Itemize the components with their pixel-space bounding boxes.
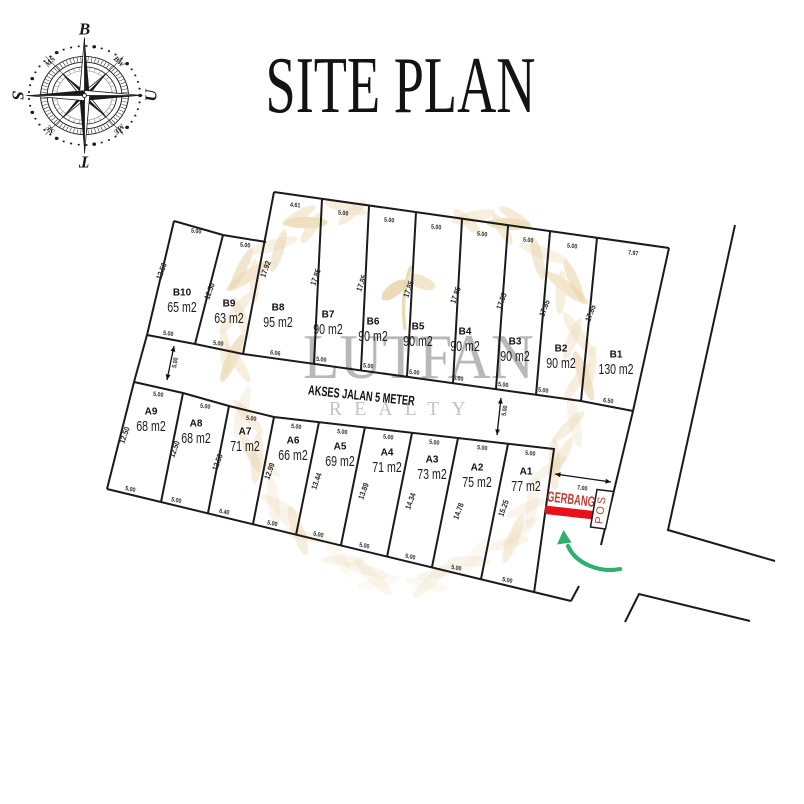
- svg-text:68 m2: 68 m2: [136, 418, 166, 435]
- svg-text:SITE PLAN: SITE PLAN: [266, 40, 536, 130]
- svg-text:5.00: 5.00: [200, 403, 212, 411]
- svg-text:69 m2: 69 m2: [325, 453, 355, 470]
- svg-text:66 m2: 66 m2: [278, 447, 308, 464]
- svg-text:5.00: 5.00: [337, 428, 349, 436]
- svg-text:S: S: [9, 91, 28, 100]
- svg-text:B9: B9: [223, 299, 236, 310]
- svg-text:7.00: 7.00: [577, 484, 589, 492]
- svg-text:5.00: 5.00: [291, 423, 303, 431]
- svg-text:A6: A6: [287, 436, 300, 447]
- svg-text:5.00: 5.00: [538, 387, 550, 395]
- svg-text:A2: A2: [471, 463, 484, 474]
- svg-text:B6: B6: [367, 317, 380, 328]
- svg-text:B2: B2: [555, 344, 568, 355]
- svg-text:68 m2: 68 m2: [181, 430, 211, 447]
- svg-text:5.00: 5.00: [383, 433, 395, 441]
- svg-text:130 m2: 130 m2: [599, 361, 634, 378]
- svg-text:B7: B7: [322, 310, 335, 321]
- svg-text:4.61: 4.61: [290, 202, 301, 210]
- svg-text:5.00: 5.00: [153, 391, 165, 399]
- svg-text:5.00: 5.00: [384, 217, 395, 225]
- svg-text:B10: B10: [173, 288, 192, 299]
- svg-text:63 m2: 63 m2: [214, 310, 244, 327]
- svg-text:5.00: 5.00: [338, 210, 349, 218]
- svg-text:5.00: 5.00: [213, 340, 225, 348]
- svg-text:5.00: 5.00: [163, 330, 175, 338]
- svg-text:A1: A1: [520, 467, 533, 478]
- svg-text:A8: A8: [190, 419, 203, 430]
- svg-text:5.00: 5.00: [429, 439, 441, 447]
- svg-text:T: T: [79, 153, 90, 172]
- svg-text:5.00: 5.00: [431, 224, 442, 232]
- svg-text:5.00: 5.00: [477, 231, 488, 239]
- svg-text:B8: B8: [272, 303, 285, 314]
- svg-text:90 m2: 90 m2: [546, 355, 576, 372]
- svg-text:7.97: 7.97: [628, 250, 639, 258]
- svg-text:5.00: 5.00: [567, 243, 578, 251]
- svg-text:90 m2: 90 m2: [358, 328, 388, 345]
- svg-text:A7: A7: [239, 427, 252, 438]
- svg-text:5.00: 5.00: [246, 415, 258, 423]
- svg-text:71 m2: 71 m2: [372, 459, 402, 476]
- svg-text:B5: B5: [412, 322, 425, 333]
- svg-text:5.00: 5.00: [498, 381, 510, 389]
- svg-text:5.00: 5.00: [363, 362, 375, 370]
- svg-text:5.00: 5.00: [453, 375, 465, 383]
- svg-text:U: U: [142, 89, 161, 102]
- svg-text:A4: A4: [381, 448, 394, 459]
- svg-text:77 m2: 77 m2: [511, 478, 541, 495]
- svg-text:73 m2: 73 m2: [417, 466, 447, 483]
- svg-text:5.00: 5.00: [477, 444, 489, 452]
- svg-text:90 m2: 90 m2: [450, 338, 480, 355]
- svg-text:5.00: 5.00: [523, 237, 534, 245]
- svg-text:5.00: 5.00: [240, 242, 251, 250]
- svg-text:6.50: 6.50: [603, 397, 615, 405]
- svg-text:90 m2: 90 m2: [313, 321, 343, 338]
- svg-text:90 m2: 90 m2: [500, 348, 530, 365]
- svg-text:B3: B3: [509, 337, 522, 348]
- svg-text:5.00: 5.00: [316, 356, 328, 364]
- svg-text:5.00: 5.00: [191, 228, 202, 236]
- svg-text:B4: B4: [459, 327, 472, 338]
- svg-text:A5: A5: [334, 442, 347, 453]
- svg-text:75 m2: 75 m2: [462, 474, 492, 491]
- svg-text:B: B: [78, 20, 90, 39]
- svg-text:B1: B1: [610, 350, 623, 361]
- svg-text:A9: A9: [145, 407, 158, 418]
- svg-text:A3: A3: [426, 455, 439, 466]
- svg-text:65 m2: 65 m2: [167, 299, 197, 316]
- svg-text:90 m2: 90 m2: [403, 333, 433, 350]
- svg-text:71 m2: 71 m2: [230, 438, 260, 455]
- svg-text:6.06: 6.06: [270, 349, 282, 357]
- svg-text:95 m2: 95 m2: [263, 314, 293, 331]
- svg-text:5.00: 5.00: [409, 369, 421, 377]
- svg-text:5.00: 5.00: [525, 450, 537, 458]
